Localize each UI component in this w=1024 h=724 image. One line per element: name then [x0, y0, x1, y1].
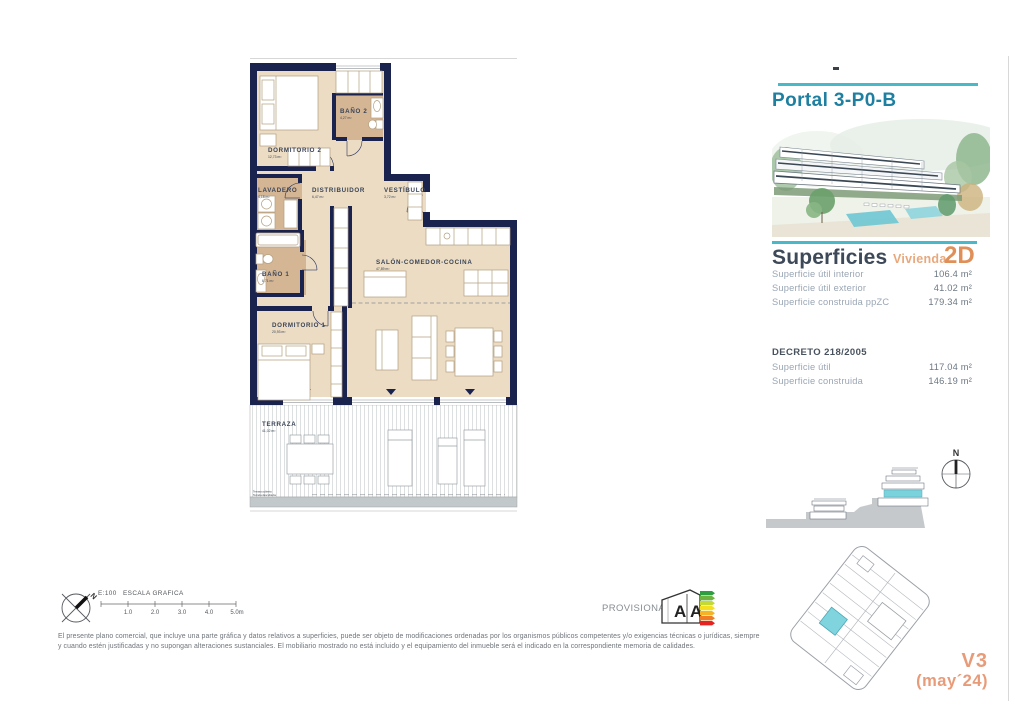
energy-certificate-icon: A A	[660, 588, 722, 626]
scale-tick-3: 3.0	[178, 610, 187, 616]
room-area-salon: 47,89 m²	[376, 267, 390, 271]
room-area-distribuidor: 6,47 m²	[312, 195, 324, 199]
header-rule	[778, 83, 978, 86]
room-area-bano1: 6,71 m²	[262, 279, 274, 283]
scale-tick-5: 5.0m	[230, 610, 243, 616]
superficies-row-label: Superficie útil interior	[772, 269, 864, 279]
section-compass: N	[942, 448, 970, 488]
room-label-bano1: BAÑO 1	[262, 271, 290, 278]
site-section: N	[760, 444, 986, 536]
superficies-row: Superficie construida ppZC 179.34 m²	[772, 297, 972, 311]
room-label-dormitorio2: DORMITORIO 2	[268, 147, 322, 154]
superficies-row: Superficie útil exterior 41.02 m²	[772, 283, 972, 297]
scale-label: ESCALA GRAFICA	[123, 590, 184, 597]
section-north-label: N	[953, 448, 960, 458]
scale-tick-4: 4.0	[205, 610, 214, 616]
plan-version: V3 (may´24)	[890, 650, 988, 691]
room-label-vestibulo: VESTÍBULO	[384, 186, 426, 194]
decreto-table: Superficie útil 117.04 m² Superficie con…	[772, 362, 972, 390]
scale-ratio: E:100	[98, 590, 117, 597]
decreto-row-value: 146.19 m²	[928, 376, 972, 386]
decreto-row: Superficie útil 117.04 m²	[772, 362, 972, 376]
room-area-bano2: 4,27 m²	[340, 116, 352, 120]
room-label-salon: SALÓN-COMEDOR-COCINA	[376, 258, 473, 266]
version-code: V3	[890, 650, 988, 672]
superficies-title: Superficies	[772, 246, 887, 270]
vivienda-code: 2D	[944, 242, 975, 270]
scale-tick-1: 1.0	[124, 610, 133, 616]
room-label-distribuidor: DISTRIBUIDOR	[312, 187, 365, 194]
terrace-note-2: Terraza descubierta	[253, 493, 276, 497]
vivienda-label: Vivienda	[893, 252, 947, 266]
superficies-row-value: 41.02 m²	[934, 283, 972, 293]
scale-bar: 1.0 2.0 3.0 4.0 5.0m	[96, 598, 244, 616]
energy-rating-arrows	[700, 591, 715, 625]
room-area-dormitorio1: 20,93 m²	[272, 330, 286, 334]
portal-title: Portal 3-P0-B	[772, 90, 897, 112]
room-area-dormitorio2: 12,73 m²	[268, 155, 282, 159]
decreto-row-label: Superficie útil	[772, 362, 831, 372]
superficies-row: Superficie útil interior 106.4 m²	[772, 269, 972, 283]
highlighted-floor	[884, 490, 922, 497]
room-area-terraza: 41,02 m²	[262, 429, 276, 433]
room-label-lavadero: LAVADERO	[258, 187, 297, 194]
room-area-vestibulo: 3,72 m²	[384, 195, 396, 199]
room-label-bano2: BAÑO 2	[340, 108, 368, 115]
floor-plan: DORMITORIO 2 12,73 m² BAÑO 2 4,27 m² LAV…	[248, 56, 520, 514]
legal-disclaimer: El presente plano comercial, que incluye…	[58, 632, 760, 653]
room-label-terraza: TERRAZA	[262, 421, 296, 428]
superficies-row-value: 106.4 m²	[934, 269, 972, 279]
room-label-dormitorio1: DORMITORIO 1	[272, 322, 326, 329]
superficies-row-value: 179.34 m²	[928, 297, 972, 307]
room-area-lavadero: 4,18 m²	[258, 195, 270, 199]
plan-compass: N	[56, 586, 100, 628]
superficies-row-label: Superficie construida ppZC	[772, 297, 889, 307]
version-date: (may´24)	[890, 672, 988, 690]
sheet-edge-line	[1008, 56, 1009, 701]
plan-sheet: DORMITORIO 2 12,73 m² BAÑO 2 4,27 m² LAV…	[0, 0, 1024, 724]
scale-tick-2: 2.0	[151, 610, 160, 616]
decreto-row-value: 117.04 m²	[929, 362, 972, 372]
decreto-row: Superficie construida 146.19 m²	[772, 376, 972, 390]
logo-mark	[833, 67, 839, 70]
energy-letter-1: A	[674, 602, 686, 621]
superficies-table: Superficie útil interior 106.4 m² Superf…	[772, 269, 972, 311]
superficies-row-label: Superficie útil exterior	[772, 283, 866, 293]
building-render	[772, 117, 990, 237]
decreto-title: DECRETO 218/2005	[772, 347, 867, 358]
decreto-row-label: Superficie construida	[772, 376, 863, 386]
